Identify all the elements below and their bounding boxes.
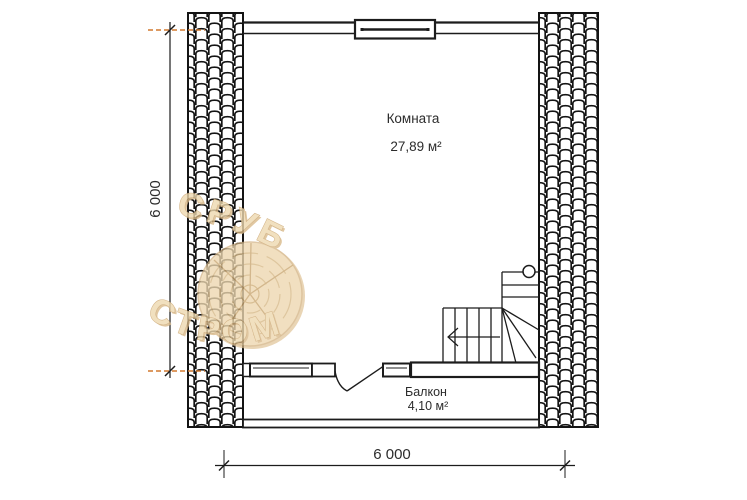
room-balcony-wall — [243, 363, 539, 392]
stair-winders — [502, 308, 539, 363]
stair-newel-post — [523, 266, 535, 278]
dimension-bottom-value: 6 000 — [373, 446, 411, 463]
stair-lower-run — [443, 308, 502, 363]
right-wall — [539, 13, 598, 427]
floor-plan-canvas: 6 000 6 000 Комната 27,89 м² Балкон 4,10… — [0, 0, 747, 500]
staircase — [443, 266, 539, 364]
room-labels: Комната 27,89 м² — [387, 111, 443, 154]
top-window — [355, 20, 435, 39]
balcony-area: 4,10 м² — [408, 399, 449, 413]
balcony-outer-wall — [243, 420, 539, 428]
balcony-window-right — [383, 364, 410, 377]
room-area: 27,89 м² — [390, 139, 442, 154]
balcony-door — [335, 367, 383, 392]
room-name: Комната — [387, 111, 440, 126]
balcony-name: Балкон — [405, 385, 447, 399]
stair-upper-run — [502, 272, 539, 363]
stair-direction-arrow — [448, 328, 500, 346]
watermark-logo: СРУБ СТРОМ СРУБ СТРОМ — [142, 185, 305, 354]
dimension-left-value: 6 000 — [147, 180, 164, 218]
balcony-labels: Балкон 4,10 м² — [405, 385, 448, 413]
dimension-bottom: 6 000 — [215, 446, 575, 478]
floor-plan-drawing: 6 000 6 000 Комната 27,89 м² Балкон 4,10… — [0, 0, 747, 500]
balcony-window-left — [250, 364, 312, 377]
